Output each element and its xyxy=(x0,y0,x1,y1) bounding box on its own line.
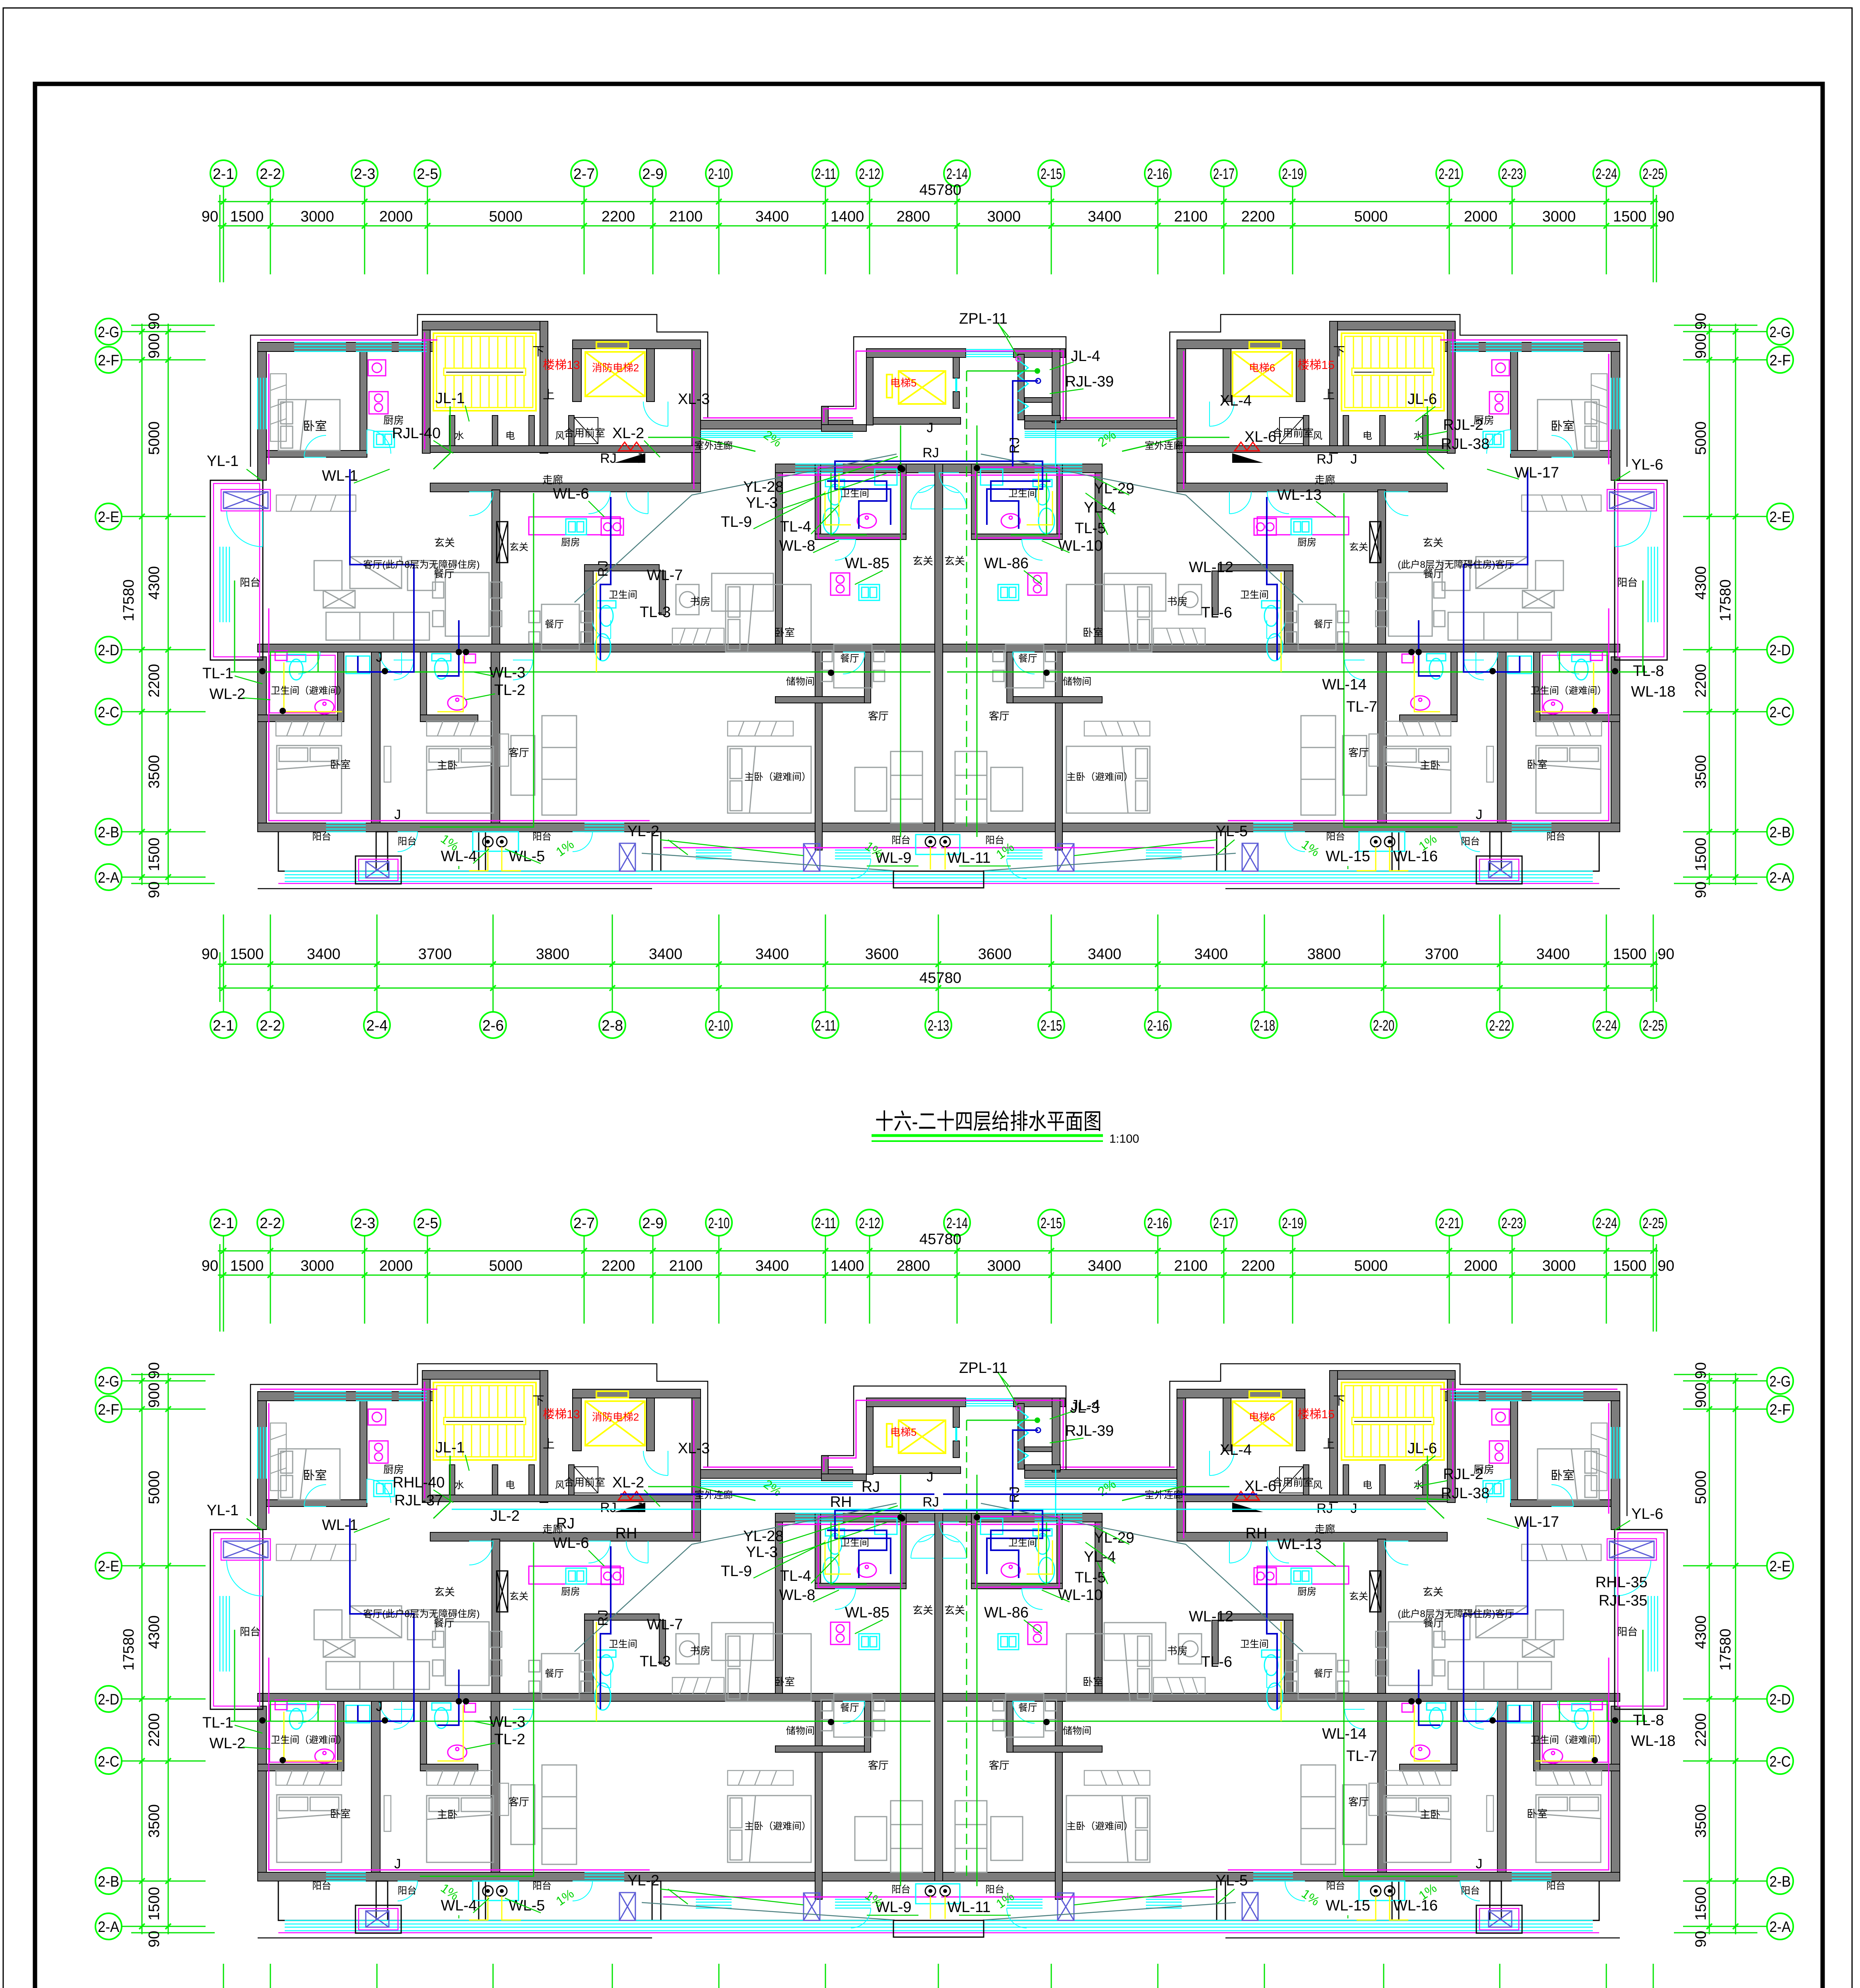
svg-text:RJL-37: RJL-37 xyxy=(394,1492,443,1509)
svg-text:RJ: RJ xyxy=(862,1479,880,1495)
svg-text:1:100: 1:100 xyxy=(1109,1132,1139,1145)
svg-text:RH: RH xyxy=(615,1525,637,1542)
svg-text:RH: RH xyxy=(1246,1525,1268,1542)
svg-text:RJL-35: RJL-35 xyxy=(1599,1592,1648,1609)
svg-text:十六-二十四层给排水平面图: 十六-二十四层给排水平面图 xyxy=(875,1109,1102,1134)
svg-text:JL-2: JL-2 xyxy=(490,1508,520,1524)
svg-text:RHL-40: RHL-40 xyxy=(393,1474,445,1491)
svg-text:JL-3: JL-3 xyxy=(1070,1400,1099,1416)
svg-text:RH: RH xyxy=(830,1494,852,1510)
svg-text:RHL-35: RHL-35 xyxy=(1596,1574,1648,1591)
svg-text:RJ: RJ xyxy=(556,1515,575,1532)
svg-text:RJL-40: RJL-40 xyxy=(392,425,441,442)
